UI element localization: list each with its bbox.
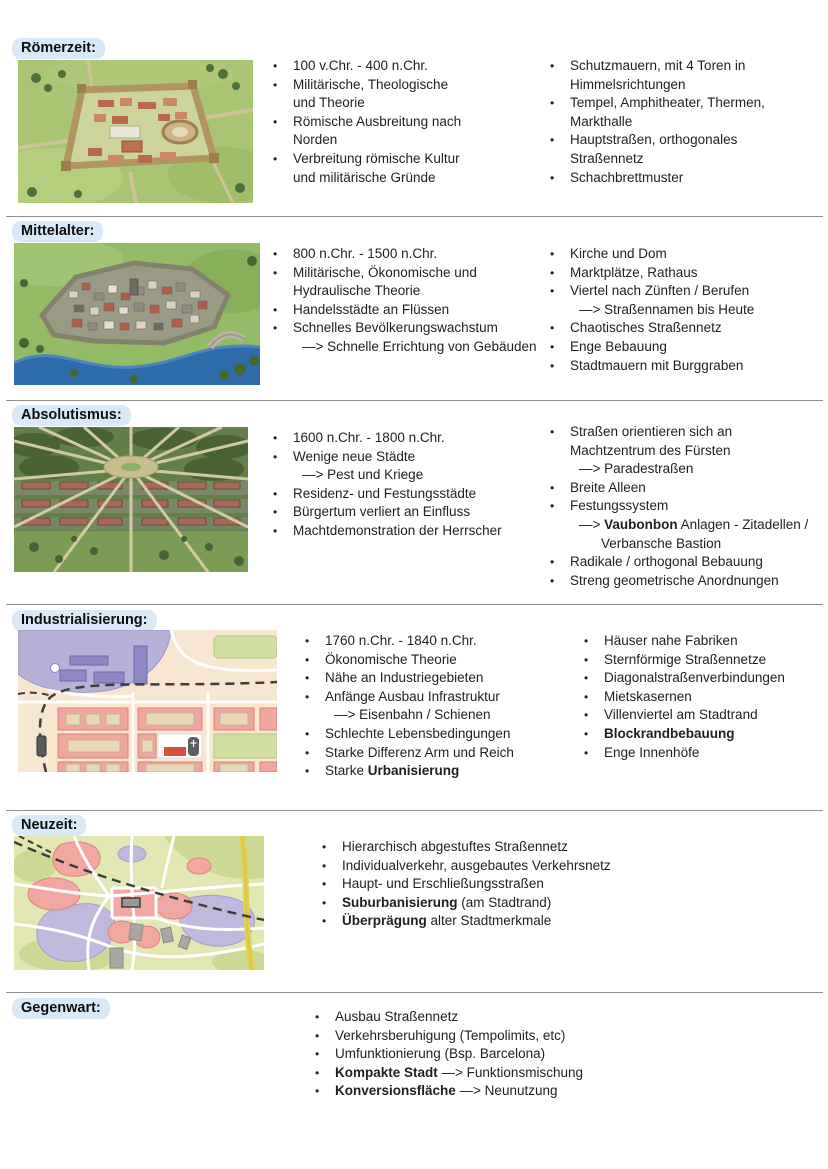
- bullet-item: Nähe an Industriegebieten: [298, 669, 563, 688]
- section-divider: [6, 810, 823, 811]
- section-divider: [6, 400, 823, 401]
- section-divider: [6, 992, 823, 993]
- bullet-item: Stadtmauern mit Burggraben: [543, 357, 828, 376]
- bullet-item: Ausbau Straßennetz: [308, 1008, 748, 1027]
- bullet-item: 1760 n.Chr. - 1840 n.Chr.: [298, 632, 563, 651]
- bullet-item: Suburbanisierung (am Stadtrand): [315, 894, 745, 913]
- bullet-list: 100 v.Chr. - 400 n.Chr.Militärische, The…: [266, 57, 546, 187]
- bullet-item: Blockrandbebauung: [577, 725, 828, 744]
- bullet-list: Hierarchisch abgestuftes StraßennetzIndi…: [315, 838, 745, 931]
- bullet-item: Tempel, Amphitheater, Thermen,Markthalle: [543, 94, 828, 131]
- bullet-item: Mietskasernen: [577, 688, 828, 707]
- bullet-item: Hierarchisch abgestuftes Straßennetz: [315, 838, 745, 857]
- bullet-item: Anfänge Ausbau Infrastruktur—> Eisenbahn…: [298, 688, 563, 725]
- section-title: Absolutismus:: [21, 407, 122, 423]
- bullet-item: Häuser nahe Fabriken: [577, 632, 828, 651]
- bullet-item: Festungssystem—> Vaubonbon Anlagen - Zit…: [543, 497, 828, 553]
- bullet-item: Hauptstraßen, orthogonalesStraßennetz: [543, 131, 828, 168]
- bullet-item: Römische Ausbreitung nachNorden: [266, 113, 546, 150]
- industrial-map-svg: [18, 630, 277, 772]
- section-title-pill-absolutismus: Absolutismus:: [12, 405, 131, 426]
- bullet-item: Wenige neue Städte—> Pest und Kriege: [266, 448, 546, 485]
- bullet-item: Machtdemonstration der Herrscher: [266, 522, 546, 541]
- bullet-item: Individualverkehr, ausgebautes Verkehrsn…: [315, 857, 745, 876]
- section-title: Mittelalter:: [21, 223, 94, 239]
- bullet-item: 1600 n.Chr. - 1800 n.Chr.: [266, 429, 546, 448]
- section-title-pill-roemerzeit: Römerzeit:: [12, 38, 105, 59]
- bullet-item: Schachbrettmuster: [543, 169, 828, 188]
- bullet-list: Häuser nahe FabrikenSternförmige Straßen…: [577, 632, 828, 762]
- bullet-item: Chaotisches Straßennetz: [543, 319, 828, 338]
- bullet-item: Diagonalstraßenverbindungen: [577, 669, 828, 688]
- bullet-item: Ökonomische Theorie: [298, 651, 563, 670]
- bullet-item: Marktplätze, Rathaus: [543, 264, 828, 283]
- section-title: Neuzeit:: [21, 817, 77, 833]
- bullet-item: Straßen orientieren sich anMachtzentrum …: [543, 423, 828, 479]
- document-page: Römerzeit:: [0, 0, 828, 1169]
- bullet-item: Militärische, Theologischeund Theorie: [266, 76, 546, 113]
- bullet-item: 100 v.Chr. - 400 n.Chr.: [266, 57, 546, 76]
- section-title-pill-industrialisierung: Industrialisierung:: [12, 610, 157, 631]
- section-title-pill-mittelalter: Mittelalter:: [12, 221, 103, 242]
- bullet-item: Enge Innenhöfe: [577, 744, 828, 763]
- bullet-item: Konversionsfläche —> Neunutzung: [308, 1082, 748, 1101]
- section-title-pill-neuzeit: Neuzeit:: [12, 815, 86, 836]
- bullet-item: Verkehrsberuhigung (Tempolimits, etc): [308, 1027, 748, 1046]
- bullet-list: Schutzmauern, mit 4 Toren inHimmelsricht…: [543, 57, 828, 187]
- bullet-item: 800 n.Chr. - 1500 n.Chr.: [266, 245, 551, 264]
- bullet-item: Kompakte Stadt —> Funktionsmischung: [308, 1064, 748, 1083]
- baroque-city-svg: [14, 427, 248, 572]
- bullet-list: 1760 n.Chr. - 1840 n.Chr.Ökonomische The…: [298, 632, 563, 781]
- section-title: Gegenwart:: [21, 1000, 101, 1016]
- bullet-item: Starke Urbanisierung: [298, 762, 563, 781]
- medieval-city-illustration: [14, 243, 260, 385]
- bullet-item: Enge Bebauung: [543, 338, 828, 357]
- modern-map-illustration: [14, 836, 264, 970]
- bullet-item: Schlechte Lebensbedingungen: [298, 725, 563, 744]
- bullet-item: Streng geometrische Anordnungen: [543, 572, 828, 591]
- industrial-map-illustration: [18, 630, 277, 772]
- section-divider: [6, 604, 823, 605]
- bullet-item: Bürgertum verliert an Einfluss: [266, 503, 546, 522]
- bullet-list: Ausbau StraßennetzVerkehrsberuhigung (Te…: [308, 1008, 748, 1101]
- bullet-item: Schnelles Bevölkerungswachstum—> Schnell…: [266, 319, 551, 356]
- bullet-list: 1600 n.Chr. - 1800 n.Chr.Wenige neue Stä…: [266, 429, 546, 541]
- roman-city-svg: [18, 60, 253, 203]
- bullet-item: Starke Differenz Arm und Reich: [298, 744, 563, 763]
- section-divider: [6, 216, 823, 217]
- modern-map-svg: [14, 836, 264, 970]
- bullet-list: 800 n.Chr. - 1500 n.Chr.Militärische, Ök…: [266, 245, 551, 357]
- bullet-item: Haupt- und Erschließungsstraßen: [315, 875, 745, 894]
- bullet-item: Umfunktionierung (Bsp. Barcelona): [308, 1045, 748, 1064]
- bullet-item: Schutzmauern, mit 4 Toren inHimmelsricht…: [543, 57, 828, 94]
- baroque-city-illustration: [14, 427, 248, 572]
- section-title: Industrialisierung:: [21, 612, 148, 628]
- medieval-city-svg: [14, 243, 260, 385]
- bullet-list: Kirche und DomMarktplätze, RathausVierte…: [543, 245, 828, 375]
- bullet-item: Viertel nach Zünften / Berufen—> Straßen…: [543, 282, 828, 319]
- section-title: Römerzeit:: [21, 40, 96, 56]
- bullet-item: Villenviertel am Stadtrand: [577, 706, 828, 725]
- bullet-item: Breite Alleen: [543, 479, 828, 498]
- bullet-list: Straßen orientieren sich anMachtzentrum …: [543, 423, 828, 590]
- section-title-pill-gegenwart: Gegenwart:: [12, 998, 110, 1019]
- bullet-item: Verbreitung römische Kulturund militäris…: [266, 150, 546, 187]
- bullet-item: Überprägung alter Stadtmerkmale: [315, 912, 745, 931]
- bullet-item: Handelsstädte an Flüssen: [266, 301, 551, 320]
- bullet-item: Kirche und Dom: [543, 245, 828, 264]
- bullet-item: Residenz- und Festungsstädte: [266, 485, 546, 504]
- bullet-item: Militärische, Ökonomische undHydraulisch…: [266, 264, 551, 301]
- bullet-item: Sternförmige Straßennetze: [577, 651, 828, 670]
- bullet-item: Radikale / orthogonal Bebauung: [543, 553, 828, 572]
- roman-city-illustration: [18, 60, 253, 203]
